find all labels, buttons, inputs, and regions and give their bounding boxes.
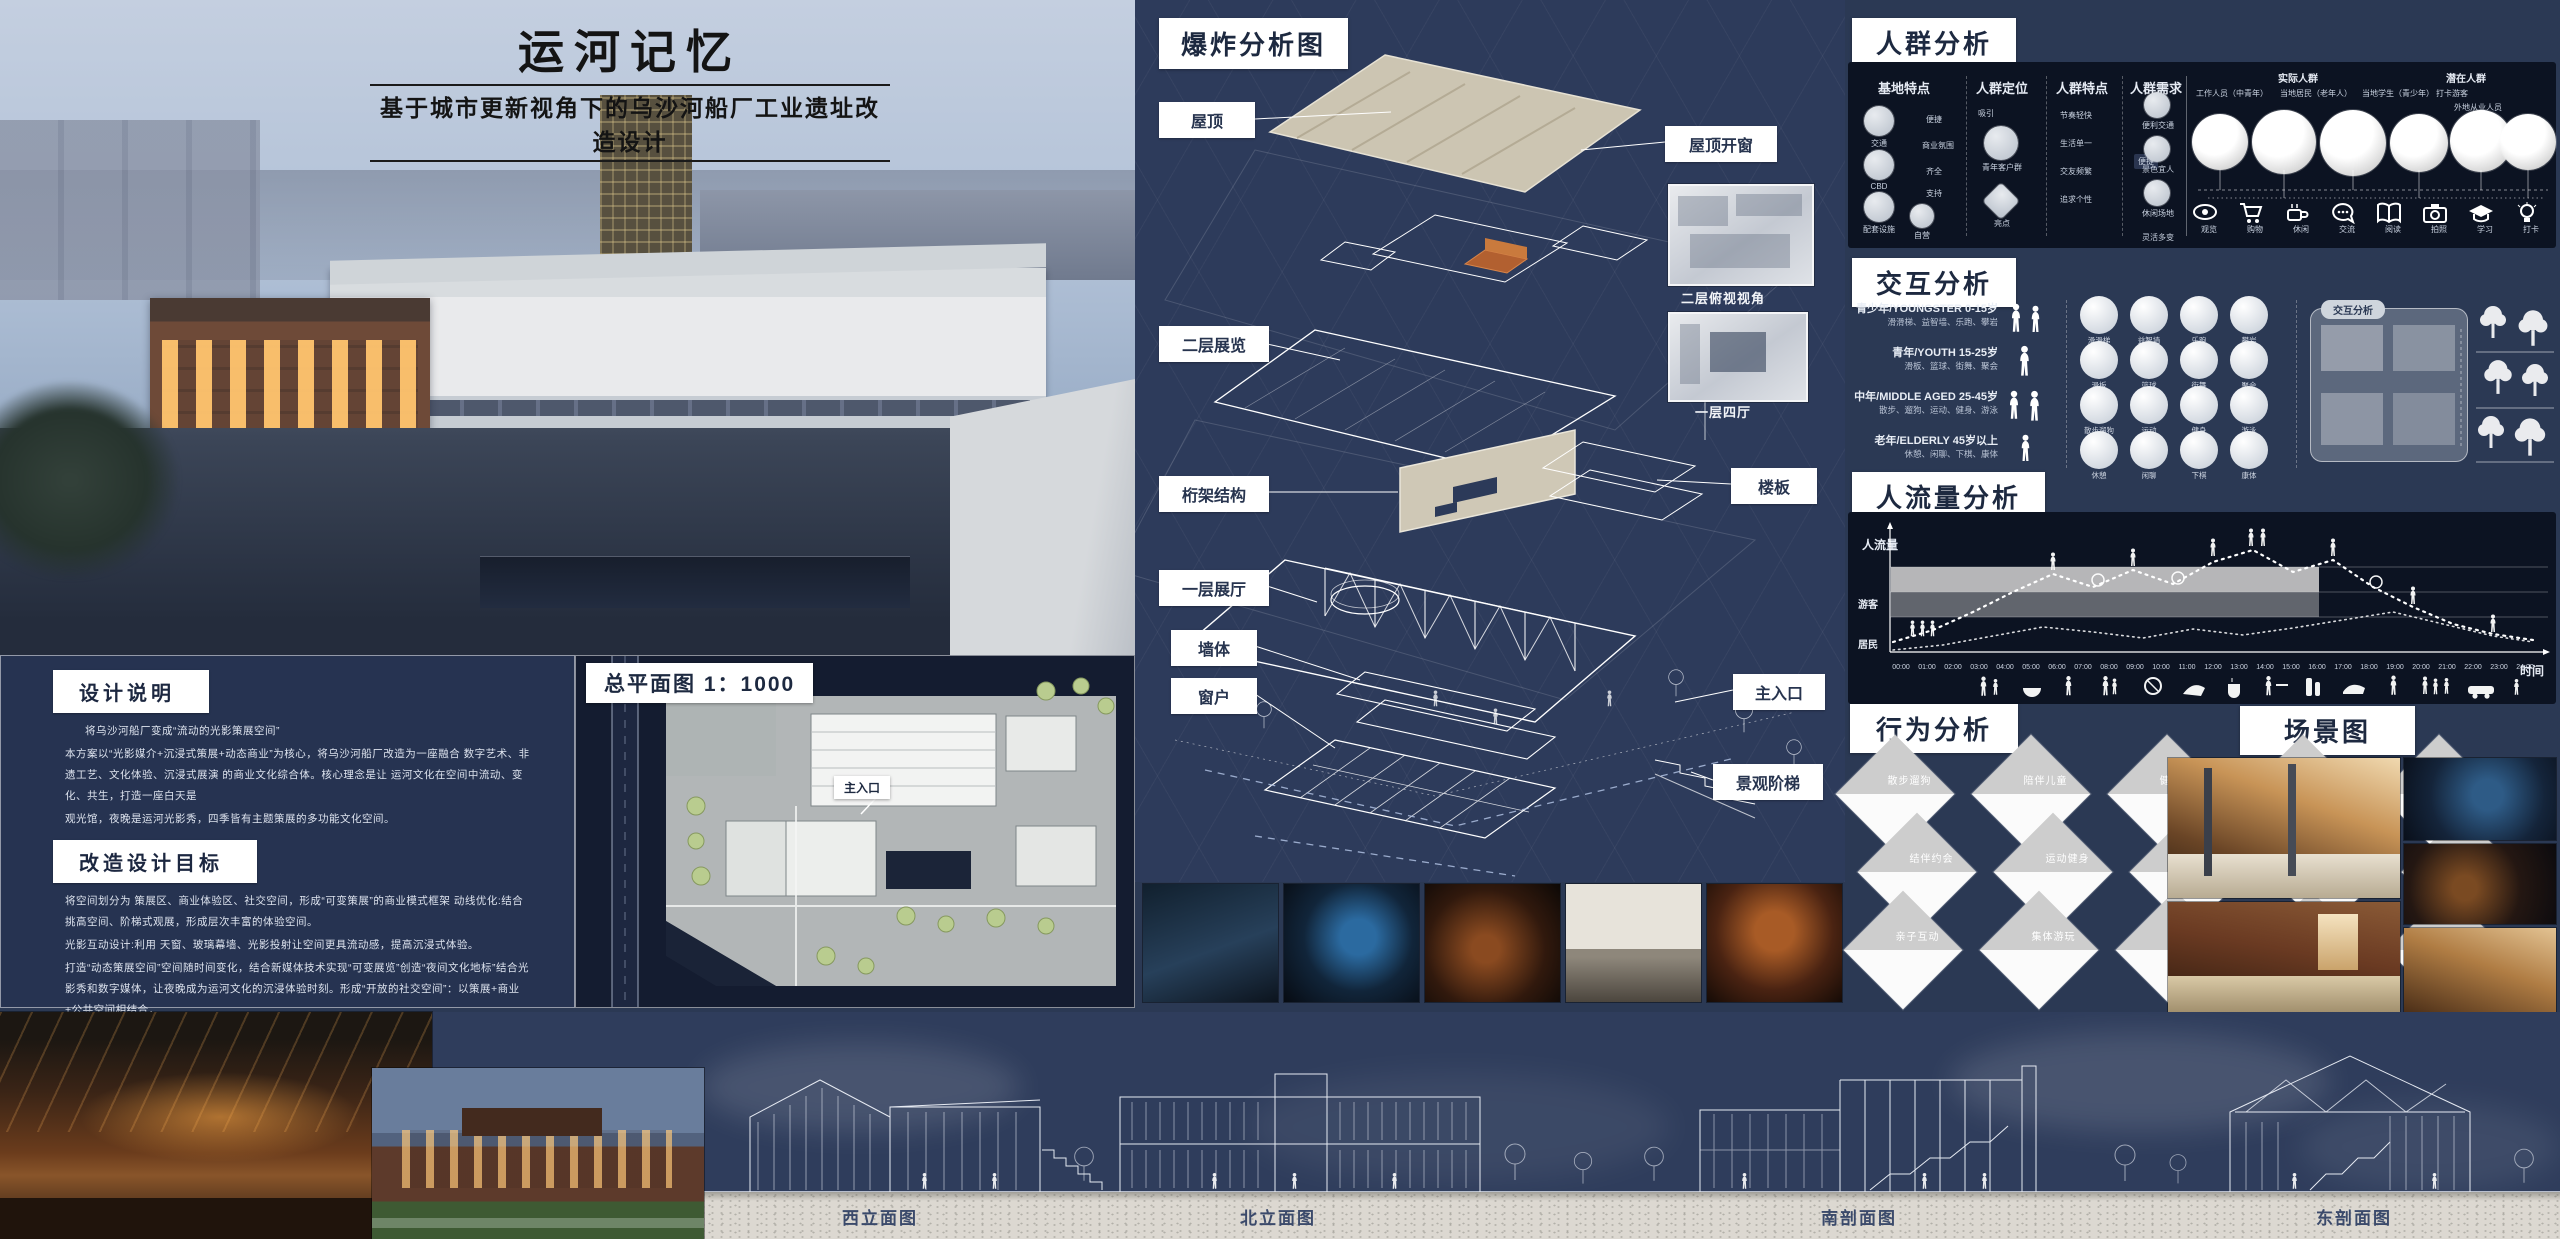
time-tick: 02:00	[1940, 664, 1966, 671]
behavior-tile: 亲子互动	[1844, 891, 1963, 1010]
coffee-cup-icon: 休闲	[2284, 202, 2318, 235]
section-title-design-notes: 设计说明	[53, 670, 209, 713]
design-notes-line: 本方案以“光影媒介+沉浸式策展+动态商业”为核心，将乌沙河船厂改造为一座融合 数…	[65, 744, 534, 807]
photo-thumbnail	[1425, 884, 1560, 1002]
goals-line: 将空间划分为 策展区、商业体验区、社交空间，形成“可变策展”的商业模式框架 动线…	[65, 891, 534, 933]
camera-icon: 拍照	[2422, 202, 2456, 235]
potential-crowd-title: 潜在人群	[2446, 70, 2486, 85]
elevation-label-west: 西立面图	[842, 1204, 918, 1229]
flow-chart	[1848, 512, 2556, 704]
crowd-photo-circle	[2192, 114, 2248, 170]
behavior-analysis-title-box: 行为分析	[1850, 704, 2018, 753]
time-tick: 18:00	[2356, 664, 2382, 671]
time-tick: 07:00	[2070, 664, 2096, 671]
activity-bubble: 康体	[2226, 431, 2272, 481]
label-main-entrance: 主入口	[1733, 674, 1825, 710]
section-title-goals: 改造设计目标	[53, 840, 257, 883]
magnet-icon	[1984, 126, 2018, 160]
label-window: 窗户	[1171, 678, 1257, 714]
interaction-sketch-pill: 交互分析	[2321, 300, 2385, 319]
needs-icon-row: 观览 购物 休闲 交流 阅读 拍照 学习 打卡	[2192, 202, 2548, 235]
title-block: 运河记忆 基于城市更新视角下的乌沙河船厂工业遗址改造设计	[370, 16, 890, 162]
photo-thumbnail	[1707, 884, 1842, 1002]
activity-bubble: 健身	[2176, 386, 2222, 436]
operation-icon	[1910, 204, 1934, 228]
label-wall: 墙体	[1171, 630, 1257, 666]
graduation-cap-icon: 学习	[2468, 202, 2502, 235]
design-notes-line: 观光馆，夜晚是运河光影秀，四季皆有主题策展的多功能文化空间。	[65, 809, 534, 830]
presentation-board: 运河记忆 基于城市更新视角下的乌沙河船厂工业遗址改造设计 设计说明 将乌沙河船厂…	[0, 0, 2560, 1239]
transport-icon	[1864, 106, 1894, 136]
photo-thumbnail	[1566, 884, 1701, 1002]
time-tick: 06:00	[2044, 664, 2070, 671]
exploded-title-box: 爆炸分析图	[1159, 18, 1348, 69]
label-slab: 楼板	[1731, 468, 1817, 504]
activity-bubble: 益智墙	[2126, 296, 2172, 346]
crowd-photo-circle	[2252, 110, 2316, 174]
viewing-icon: 观览	[2192, 202, 2226, 235]
leisure-icon	[2144, 180, 2170, 206]
age-group-elderly: 老年/ELDERLY 45岁以上 休憩、闲聊、下棋、康体	[1848, 432, 1998, 460]
photo-thumbnail	[1284, 884, 1419, 1002]
activity-bubble: 攀岩	[2226, 296, 2272, 346]
crowd-analysis-title-box: 人群分析	[1852, 18, 2016, 67]
age-group-youth: 青年/YOUTH 15-25岁 滑板、篮球、街舞、聚会	[1848, 344, 1998, 372]
scene-photo	[2404, 758, 2556, 840]
activity-bubble: 散步遛狗	[2076, 386, 2122, 436]
time-tick: 00:00	[1888, 664, 1914, 671]
label-landscape-steps: 景观阶梯	[1713, 764, 1823, 800]
activity-bubble: 运动	[2126, 386, 2172, 436]
age-group-middle: 中年/MIDDLE AGED 25-45岁 散步、遛狗、运动、健身、游泳	[1848, 388, 1998, 416]
interaction-analysis-panel: 青少年/YOUNGSTER 0-15岁 滑滑梯、益智墙、乐跑、攀岩 青年/YOU…	[1848, 300, 2556, 470]
elevation-drawings	[690, 1022, 2560, 1194]
chat-icon: 交流	[2330, 202, 2364, 235]
activity-bubble: 聚会	[2226, 341, 2272, 391]
scene-photo	[2168, 758, 2400, 898]
hero-apartment-blocks	[0, 120, 260, 300]
cbd-icon	[1864, 150, 1894, 180]
facilities-icon	[1864, 192, 1894, 222]
page-subtitle: 基于城市更新视角下的乌沙河船厂工业遗址改造设计	[370, 84, 890, 162]
label-second-floor: 二层展览	[1159, 326, 1269, 362]
page-title: 运河记忆	[518, 16, 742, 82]
site-plan-drawing	[576, 656, 1134, 1007]
time-tick: 14:00	[2252, 664, 2278, 671]
hero-white-wall	[950, 378, 1140, 655]
activity-bubble: 下棋	[2176, 431, 2222, 481]
tag-icon	[1983, 183, 2020, 220]
crowd-analysis-panel: 基地特点 人群定位 人群特点 人群需求 交通 CBD 配套设施 自营 便捷 商业…	[1848, 62, 2556, 248]
hero-brick-hall-windows	[162, 340, 418, 436]
flow-xlabel: 时间	[2520, 662, 2544, 679]
behavior-tile: 集体游玩	[1980, 891, 2099, 1010]
time-tick: 03:00	[1966, 664, 1992, 671]
inset-caption-first-floor: 一层四厅	[1695, 402, 1751, 421]
scene-images-title-box: 场景图	[2240, 706, 2415, 755]
activity-bubble: 篮球	[2126, 341, 2172, 391]
activity-bubble: 休憩	[2076, 431, 2122, 481]
inset-second-floor-view	[1668, 184, 1814, 286]
activity-bubble: 滑滑梯	[2076, 296, 2122, 346]
time-tick: 10:00	[2148, 664, 2174, 671]
time-tick: 08:00	[2096, 664, 2122, 671]
scene-photo	[2404, 928, 2556, 1012]
inset-first-floor-hall	[1668, 312, 1808, 402]
scenery-icon	[2144, 136, 2170, 162]
lightbulb-icon: 打卡	[2514, 202, 2548, 235]
street-tree-icons	[2476, 304, 2556, 466]
exploded-diagram-panel: 爆炸分析图 屋顶 屋顶开窗 二层展览 桁架结构 楼板 一层展厅 墙体 窗户 主入…	[1135, 0, 1845, 882]
time-tick: 19:00	[2382, 664, 2408, 671]
time-tick: 22:00	[2460, 664, 2486, 671]
dusk-exterior-photo	[372, 1068, 704, 1239]
actual-crowd-title: 实际人群	[2278, 70, 2318, 85]
inset-caption-second-floor: 二层俯视视角	[1681, 288, 1765, 307]
workshop-interior-photo	[0, 1012, 432, 1239]
age-group-youngster: 青少年/YOUNGSTER 0-15岁 滑滑梯、益智墙、乐跑、攀岩	[1848, 300, 1998, 328]
activity-bubble: 街舞	[2176, 341, 2222, 391]
flow-analysis-panel: 人流量 游客 居民	[1848, 512, 2556, 704]
hero-reflecting-pool	[480, 556, 910, 608]
activity-bubble: 乐跑	[2176, 296, 2222, 346]
scene-photo	[2404, 844, 2556, 924]
time-tick: 13:00	[2226, 664, 2252, 671]
design-notes-panel: 设计说明 将乌沙河船厂变成“流动的光影策展空间” 本方案以“光影媒介+沉浸式策展…	[0, 655, 575, 1008]
hero-photo: 运河记忆 基于城市更新视角下的乌沙河船厂工业遗址改造设计	[0, 0, 1140, 655]
hero-warehouse-ribbon-window	[350, 400, 1030, 416]
time-tick: 12:00	[2200, 664, 2226, 671]
crowd-col-position: 人群定位	[1976, 78, 2028, 97]
time-tick: 01:00	[1914, 664, 1940, 671]
age-group-figures	[2004, 302, 2064, 468]
elevation-ground-strip: 西立面图 北立面图 南剖面图 东剖面图	[690, 1192, 2560, 1239]
site-plan-title: 总平面图 1：1000	[604, 668, 795, 698]
traffic-icon	[2144, 92, 2170, 118]
time-tick: 09:00	[2122, 664, 2148, 671]
activity-bubble: 滑板	[2076, 341, 2122, 391]
time-tick: 05:00	[2018, 664, 2044, 671]
time-tick: 21:00	[2434, 664, 2460, 671]
time-axis: 00:0001:0002:0003:0004:0005:0006:0007:00…	[1888, 656, 2538, 674]
site-plan-entrance-label: 主入口	[834, 776, 890, 799]
time-tick: 17:00	[2330, 664, 2356, 671]
scene-photo	[2168, 902, 2400, 1012]
elevation-label-north: 北立面图	[1240, 1204, 1316, 1229]
time-tick: 15:00	[2278, 664, 2304, 671]
activity-bubble: 游泳	[2226, 386, 2272, 436]
label-first-hall: 一层展厅	[1159, 570, 1269, 606]
time-tick: 16:00	[2304, 664, 2330, 671]
shopping-cart-icon: 购物	[2238, 202, 2272, 235]
book-icon: 阅读	[2376, 202, 2410, 235]
hero-foreground-planting	[0, 380, 180, 580]
crowd-col-trait: 人群特点	[2056, 78, 2108, 97]
activity-bubble-grid: 滑滑梯益智墙乐跑攀岩滑板篮球街舞聚会散步遛狗运动健身游泳休憩闲聊下棋康体	[2076, 296, 2286, 474]
site-plan-panel: 总平面图 1：1000 主入口	[575, 655, 1135, 1008]
elevation-label-south: 南剖面图	[1821, 1204, 1897, 1229]
crowd-photo-circle	[2320, 110, 2386, 176]
goals-line: 光影互动设计:利用 天窗、玻璃幕墙、光影投射让空间更具流动感，提高沉浸式体验。	[65, 935, 534, 956]
label-roof: 屋顶	[1159, 102, 1255, 138]
elevation-label-east: 东剖面图	[2316, 1204, 2392, 1229]
design-notes-line: 将乌沙河船厂变成“流动的光影策展空间”	[85, 721, 534, 742]
site-plan-title-box: 总平面图 1：1000	[586, 663, 813, 703]
label-roof-window: 屋顶开窗	[1665, 126, 1777, 162]
time-tick: 20:00	[2408, 664, 2434, 671]
interaction-sketch-panel: 交互分析	[2310, 308, 2468, 462]
time-tick: 11:00	[2174, 664, 2200, 671]
time-tick: 23:00	[2486, 664, 2512, 671]
activity-bubble: 闲聊	[2126, 431, 2172, 481]
time-tick: 04:00	[1992, 664, 2018, 671]
label-truss: 桁架结构	[1159, 476, 1269, 512]
photo-thumbnail	[1143, 884, 1278, 1002]
crowd-photo-circle	[2390, 114, 2448, 172]
crowd-photo-circle	[2500, 114, 2556, 170]
crowd-col-base: 基地特点	[1878, 78, 1930, 97]
